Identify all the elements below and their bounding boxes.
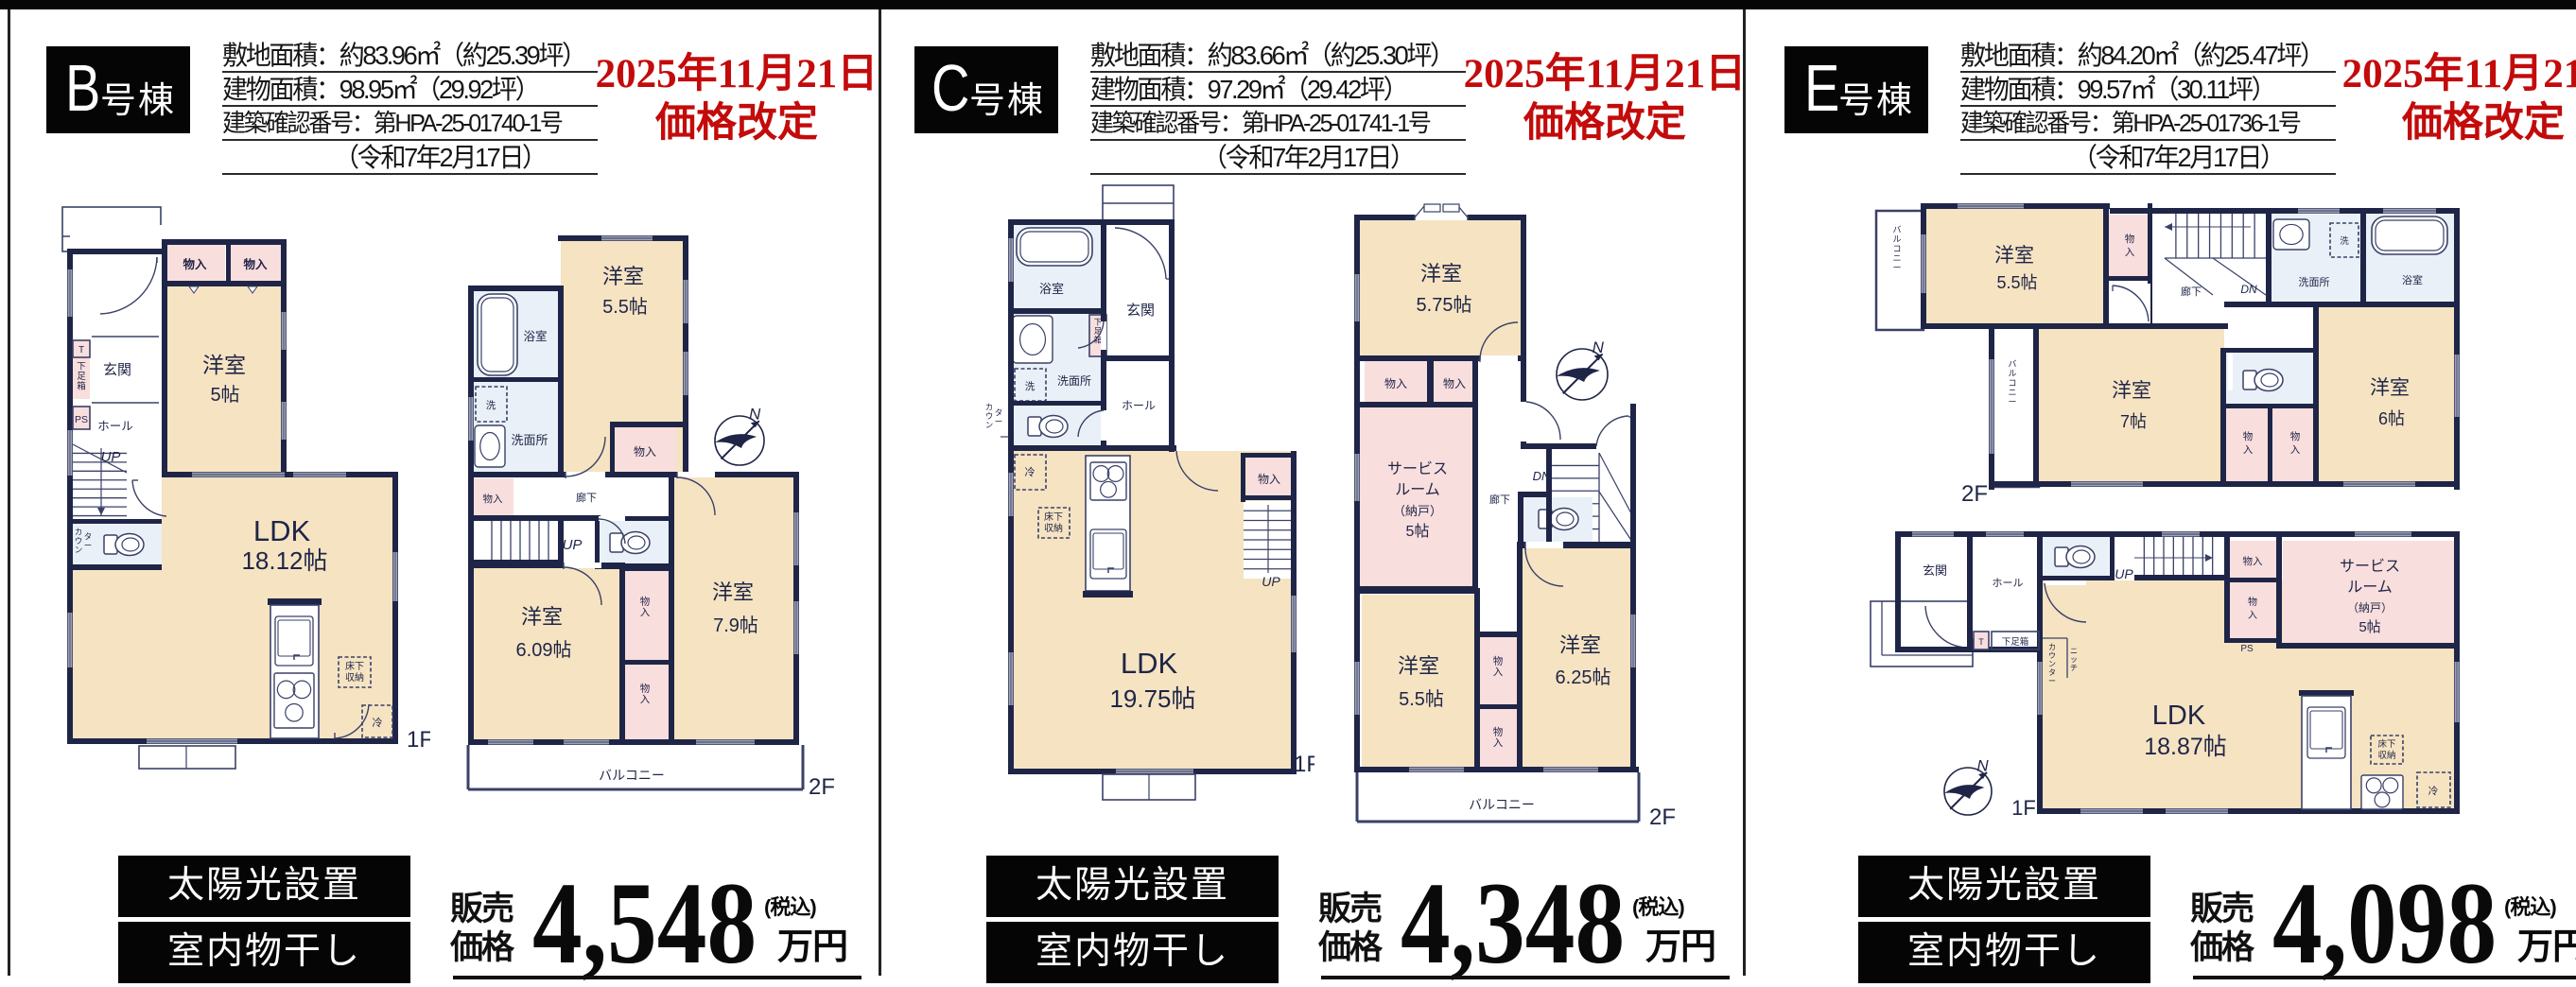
svg-text:UP: UP (2115, 566, 2133, 581)
svg-text:サービス: サービス (2340, 558, 2400, 575)
svg-text:玄関: 玄関 (103, 362, 131, 378)
svg-text:物入: 物入 (634, 445, 656, 459)
svg-text:洗: 洗 (1025, 381, 1036, 392)
svg-text:5帖: 5帖 (210, 384, 239, 406)
svg-text:T: T (1978, 637, 1984, 647)
svg-text:冷: 冷 (1025, 466, 1036, 478)
svg-text:下足箱: 下足箱 (2002, 636, 2029, 648)
svg-text:物: 物 (2248, 596, 2257, 608)
svg-text:7帖: 7帖 (2120, 412, 2147, 431)
svg-text:物: 物 (2125, 233, 2135, 245)
svg-text:洋室: 洋室 (1994, 245, 2034, 267)
svg-text:廊下: 廊下 (1489, 493, 1510, 506)
svg-text:N: N (749, 406, 761, 424)
svg-text:バルコニー: バルコニー (599, 768, 665, 783)
svg-text:物入: 物入 (243, 257, 268, 271)
svg-text:LDK: LDK (2152, 701, 2206, 731)
svg-text:1F: 1F (1294, 752, 1314, 777)
svg-text:洗: 洗 (2340, 235, 2349, 247)
svg-text:ター: ター (995, 408, 1003, 427)
svg-text:入: 入 (2243, 444, 2254, 456)
svg-text:ルーム: ルーム (2347, 580, 2393, 596)
svg-text:廊下: 廊下 (2181, 285, 2202, 298)
svg-text:N: N (1976, 757, 1989, 775)
svg-text:PS: PS (2240, 644, 2254, 654)
svg-text:床下: 床下 (345, 660, 364, 672)
svg-text:カウン: カウン (985, 403, 994, 430)
svg-text:物入: 物入 (483, 493, 503, 505)
svg-text:1F: 1F (2011, 796, 2036, 820)
svg-text:18.12帖: 18.12帖 (241, 546, 327, 575)
svg-text:冷: 冷 (2428, 785, 2439, 797)
svg-text:浴室: 浴室 (523, 329, 547, 343)
svg-text:洋室: 洋室 (602, 265, 644, 288)
svg-text:DN: DN (2240, 283, 2257, 296)
svg-text:ター: ター (84, 532, 93, 551)
svg-text:洋室: 洋室 (202, 353, 246, 377)
svg-text:5.75帖: 5.75帖 (1417, 294, 1472, 316)
svg-text:物入: 物入 (1493, 654, 1504, 678)
svg-text:廊下: 廊下 (576, 491, 597, 504)
svg-text:6.09帖: 6.09帖 (516, 639, 572, 661)
svg-text:ホール: ホール (1993, 577, 2024, 589)
svg-text:入: 入 (2125, 247, 2135, 258)
svg-text:6.25帖: 6.25帖 (1556, 667, 1611, 688)
svg-text:入: 入 (2290, 444, 2301, 456)
svg-text:床下: 床下 (2377, 738, 2395, 750)
svg-text:ホール: ホール (1122, 399, 1156, 412)
svg-text:収納: 収納 (2377, 750, 2395, 761)
svg-text:物入: 物入 (1443, 377, 1466, 390)
svg-text:洗面所: 洗面所 (511, 433, 548, 447)
svg-text:6帖: 6帖 (2378, 409, 2405, 428)
svg-text:（納戸）: （納戸） (1393, 504, 1442, 518)
svg-text:ルーム: ルーム (1395, 482, 1440, 498)
svg-text:7.9帖: 7.9帖 (713, 615, 758, 636)
svg-text:カウン: カウン (75, 528, 83, 555)
svg-text:5.5帖: 5.5帖 (1996, 273, 2037, 292)
svg-text:19.75帖: 19.75帖 (1109, 684, 1195, 713)
svg-text:下足箱: 下足箱 (77, 362, 86, 392)
svg-text:物入: 物入 (2243, 555, 2264, 567)
svg-text:5.5帖: 5.5帖 (1399, 688, 1444, 710)
svg-text:（納戸）: （納戸） (2347, 601, 2393, 615)
svg-text:物入: 物入 (1384, 377, 1407, 390)
svg-text:ニッチ: ニッチ (2070, 647, 2078, 672)
svg-text:床下: 床下 (1044, 511, 1063, 523)
svg-text:洗面所: 洗面所 (2299, 276, 2330, 288)
svg-text:洋室: 洋室 (2370, 377, 2410, 399)
svg-text:収納: 収納 (1044, 522, 1063, 534)
svg-text:N: N (1593, 338, 1605, 356)
svg-text:カウンター: カウンター (2048, 643, 2056, 685)
svg-text:バルコニー: バルコニー (2008, 359, 2016, 407)
svg-text:バルコニー: バルコニー (1469, 797, 1535, 812)
svg-text:UP: UP (1262, 574, 1280, 589)
svg-text:2F: 2F (1649, 805, 1676, 830)
svg-text:5.5帖: 5.5帖 (602, 296, 648, 318)
svg-text:物: 物 (2290, 430, 2301, 442)
svg-text:2F: 2F (1961, 481, 1988, 506)
svg-text:冷: 冷 (373, 717, 383, 729)
svg-text:LDK: LDK (1121, 647, 1178, 680)
svg-text:収納: 収納 (345, 671, 364, 684)
svg-text:LDK: LDK (253, 514, 311, 547)
svg-text:UP: UP (563, 537, 583, 553)
svg-text:物入: 物入 (1258, 473, 1280, 486)
svg-text:玄関: 玄関 (1923, 563, 1947, 578)
svg-text:T: T (78, 345, 84, 355)
svg-text:洋室: 洋室 (1398, 654, 1439, 678)
svg-text:玄関: 玄関 (1126, 303, 1155, 319)
svg-text:物入: 物入 (640, 682, 651, 705)
svg-text:PS: PS (75, 414, 88, 425)
svg-text:物入: 物入 (1493, 725, 1504, 749)
svg-text:入: 入 (2248, 611, 2257, 621)
svg-text:洗: 洗 (486, 400, 496, 411)
svg-text:バルコニー: バルコニー (1892, 225, 1901, 272)
svg-text:サービス: サービス (1387, 460, 1448, 477)
svg-text:浴室: 浴室 (1039, 282, 1064, 296)
svg-text:洋室: 洋室 (2112, 380, 2151, 402)
svg-text:UP: UP (101, 449, 121, 465)
svg-text:1F: 1F (407, 727, 430, 753)
svg-text:洗面所: 洗面所 (1057, 374, 1091, 388)
svg-text:物: 物 (2243, 430, 2254, 442)
svg-text:ホール: ホール (97, 420, 133, 433)
svg-text:5帖: 5帖 (1406, 523, 1430, 540)
svg-text:物入: 物入 (640, 595, 651, 618)
svg-text:洋室: 洋室 (1420, 262, 1462, 286)
svg-text:浴室: 浴室 (2402, 273, 2423, 286)
svg-text:18.87帖: 18.87帖 (2144, 734, 2227, 760)
svg-text:洋室: 洋室 (521, 605, 563, 629)
svg-text:物入: 物入 (183, 257, 207, 271)
svg-text:洋室: 洋室 (1559, 633, 1601, 657)
svg-text:洋室: 洋室 (712, 580, 754, 604)
svg-text:2F: 2F (809, 774, 835, 800)
svg-text:5帖: 5帖 (2358, 619, 2380, 635)
